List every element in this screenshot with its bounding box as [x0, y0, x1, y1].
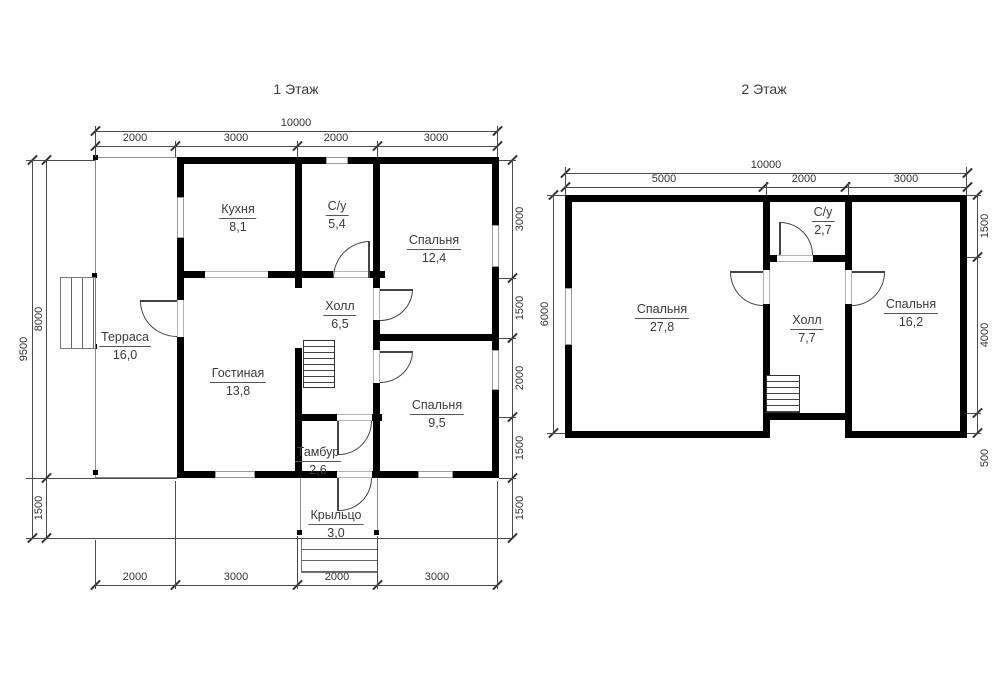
window — [418, 471, 453, 478]
room-label-bedroom: Спальня 27,8 — [635, 302, 689, 335]
floorplan-drawing: 1 Этаж — [0, 0, 1000, 700]
extension-line — [499, 278, 516, 279]
wall — [845, 195, 852, 438]
porch-steps — [301, 538, 378, 573]
extension-line — [175, 481, 176, 589]
door-opening — [177, 300, 184, 337]
room-label-kitchen: Кухня 8,1 — [219, 202, 256, 235]
door-arc — [730, 272, 763, 306]
door-opening — [777, 255, 813, 262]
extension-line — [499, 417, 516, 418]
wall — [565, 431, 770, 438]
door-arc — [780, 222, 813, 255]
extension-line — [967, 433, 981, 434]
extension-line — [175, 141, 176, 157]
extension-line — [377, 536, 378, 589]
extension-line — [297, 141, 298, 157]
stairs — [303, 340, 335, 388]
extension-line — [547, 433, 565, 434]
door-opening — [373, 288, 380, 320]
door-arc — [339, 421, 372, 455]
dim-label: 1500 — [514, 296, 526, 320]
wall — [845, 431, 967, 438]
door-arc — [380, 351, 413, 383]
stairs — [766, 375, 800, 413]
room-label-hall: Холл 6,5 — [323, 299, 356, 332]
door-opening — [373, 350, 380, 383]
room-label-bedroom: Спальня 9,5 — [410, 398, 464, 431]
dim-label: 500 — [979, 449, 991, 467]
dim-label: 8000 — [33, 307, 45, 331]
extension-line — [967, 413, 981, 414]
dim-line — [553, 195, 554, 433]
dim-label: 1500 — [33, 496, 45, 520]
dim-label: 3000 — [224, 132, 248, 144]
window — [215, 471, 255, 478]
extension-line — [967, 257, 981, 258]
wall — [960, 195, 967, 438]
dim-label: 3000 — [425, 571, 449, 583]
extension-line — [499, 338, 516, 339]
terrace-edge — [95, 157, 177, 158]
extension-line — [848, 182, 849, 195]
room-label-wc: С/у 5,4 — [326, 199, 349, 232]
dim-line — [46, 160, 47, 538]
dim-label: 10000 — [281, 117, 312, 129]
dim-label: 2000 — [514, 366, 526, 390]
dim-line — [977, 195, 978, 433]
dim-line — [512, 160, 513, 538]
dim-label: 2000 — [792, 173, 816, 185]
extension-line — [497, 481, 498, 589]
window — [492, 225, 499, 267]
dim-label: 3000 — [224, 571, 248, 583]
room-label-bedroom: Спальня 16,2 — [884, 297, 938, 330]
room-label-vestibule: Тамбур 2,6 — [295, 445, 341, 478]
door-arc — [333, 241, 370, 278]
dim-label: 3000 — [894, 173, 918, 185]
door-opening — [337, 471, 372, 478]
dim-label: 1500 — [514, 496, 526, 520]
door-arc — [339, 478, 372, 511]
extension-line — [547, 195, 565, 196]
dim-label: 3000 — [424, 132, 448, 144]
room-label-wc: С/у 2,7 — [812, 205, 835, 238]
dim-line — [32, 160, 33, 538]
dim-label: 6000 — [539, 302, 551, 326]
extension-line — [95, 540, 96, 589]
door-opening — [845, 270, 852, 304]
window — [326, 157, 348, 164]
room-label-bedroom: Спальня 12,4 — [407, 233, 461, 266]
dim-label: 9500 — [18, 337, 30, 361]
porch-edge — [377, 478, 378, 535]
room-label-terrace: Терраса 16,0 — [99, 330, 151, 363]
door-opening — [337, 414, 372, 421]
wall — [295, 157, 302, 288]
wall — [763, 413, 852, 420]
terrace-steps — [60, 277, 96, 349]
window — [177, 197, 184, 238]
post-marker — [374, 530, 379, 535]
dim-label: 10000 — [751, 159, 782, 171]
post-marker — [93, 470, 98, 475]
extension-line — [565, 167, 566, 195]
terrace-edge — [95, 157, 96, 277]
terrace-edge — [95, 348, 96, 478]
room-label-living: Гостиная 13,8 — [210, 366, 266, 399]
dim-label: 2000 — [324, 132, 348, 144]
extension-line — [26, 478, 177, 479]
wall — [492, 157, 499, 478]
extension-line — [26, 538, 512, 539]
dim-label: 1500 — [979, 214, 991, 238]
passage-opening — [205, 271, 268, 278]
dim-label: 1500 — [514, 436, 526, 460]
wall — [373, 334, 499, 341]
floor1-title: 1 Этаж — [273, 81, 318, 97]
dim-label: 4000 — [979, 323, 991, 347]
extension-line — [377, 141, 378, 157]
extension-line — [766, 182, 767, 195]
extension-line — [967, 195, 981, 196]
porch-edge — [300, 478, 301, 535]
post-marker — [297, 530, 302, 535]
window — [492, 350, 499, 390]
dim-label: 2000 — [325, 571, 349, 583]
extension-line — [497, 126, 498, 157]
extension-line — [499, 160, 516, 161]
door-opening — [763, 270, 770, 304]
room-label-porch: Крыльцо 3,0 — [309, 508, 364, 541]
floor2-title: 2 Этаж — [741, 81, 786, 97]
door-arc — [852, 272, 885, 306]
extension-line — [26, 160, 95, 161]
window — [565, 288, 572, 345]
extension-line — [95, 126, 96, 157]
door-arc — [380, 289, 413, 321]
extension-line — [966, 167, 967, 195]
extension-line — [499, 478, 516, 479]
dim-label: 2000 — [123, 132, 147, 144]
dim-label: 2000 — [123, 571, 147, 583]
dim-label: 5000 — [652, 173, 676, 185]
dim-label: 3000 — [514, 207, 526, 231]
extension-line — [297, 536, 298, 589]
room-label-hall: Холл 7,7 — [790, 313, 823, 346]
